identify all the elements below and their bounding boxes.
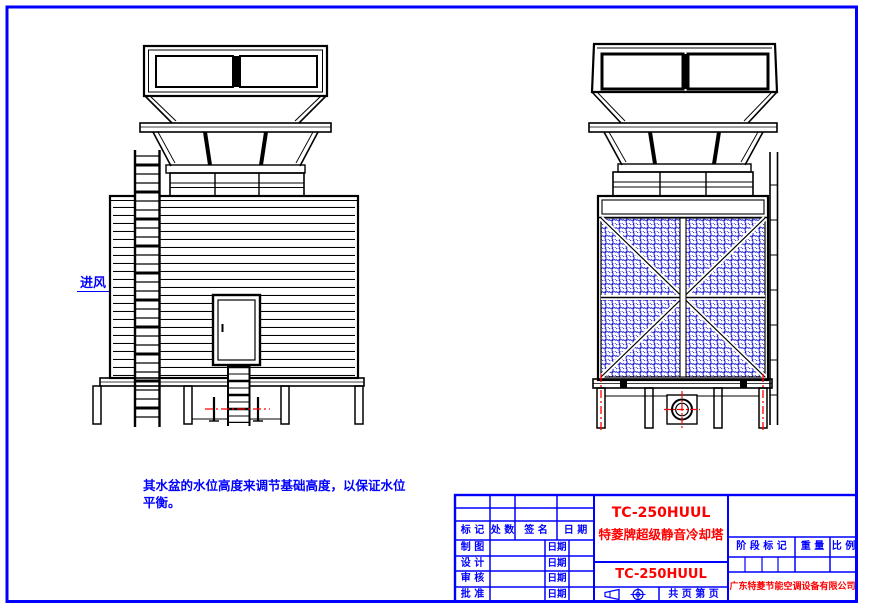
row-checked-date: 日期 bbox=[545, 571, 569, 587]
scale-label: 比 例 bbox=[830, 537, 857, 557]
inlet-mesh-panel bbox=[598, 196, 768, 380]
note-line-2: 平衡。 bbox=[143, 496, 181, 511]
rev-col-count: 处 数 bbox=[490, 521, 515, 540]
rev-col-signature: 签 名 bbox=[515, 521, 557, 540]
rev-col-date: 日 期 bbox=[557, 521, 594, 540]
company-name: 广东特菱节能空调设备有限公司 bbox=[728, 572, 857, 602]
model-number-small: TC-250HUUL bbox=[594, 562, 728, 587]
left-view-side-elevation bbox=[93, 46, 364, 427]
drain-pipe bbox=[664, 391, 700, 428]
air-inlet-label: 进风 bbox=[77, 276, 109, 292]
drawing-svg bbox=[0, 0, 871, 611]
note-line-1: 其水盆的水位高度来调节基础高度，以保证水位 bbox=[143, 479, 406, 494]
ladder-edge-on bbox=[770, 152, 778, 425]
row-approved-label: 批 准 bbox=[455, 587, 490, 602]
fan-venturi-left bbox=[153, 132, 318, 173]
fan-support-stand-left bbox=[170, 173, 304, 196]
right-view-front-elevation bbox=[589, 44, 778, 433]
drawing-sheet: 进风 其水盆的水位高度来调节基础高度，以保证水位 平衡。 标 记 处 数 签 名… bbox=[0, 0, 871, 611]
first-angle-projection-icon bbox=[598, 588, 656, 601]
rev-col-mark: 标 记 bbox=[455, 521, 490, 540]
row-approved-date: 日期 bbox=[545, 587, 569, 602]
access-door bbox=[213, 295, 260, 365]
row-designed-label: 设 计 bbox=[455, 556, 490, 571]
stage-mark-label: 阶 段 标 记 bbox=[728, 537, 795, 557]
fan-support-stand-right bbox=[613, 172, 753, 196]
model-number: TC-250HUUL bbox=[594, 503, 728, 523]
fan-venturi-right bbox=[604, 132, 763, 172]
fan-cowl-right bbox=[589, 44, 777, 132]
row-drafted-label: 制 图 bbox=[455, 540, 490, 556]
row-designed-date: 日期 bbox=[545, 556, 569, 571]
row-drafted-date: 日期 bbox=[545, 540, 569, 556]
pages-label: 共 页 第 页 bbox=[659, 587, 728, 602]
fan-cowl-left bbox=[140, 46, 331, 132]
weight-label: 重 量 bbox=[795, 537, 830, 557]
row-checked-label: 审 核 bbox=[455, 571, 490, 587]
product-name: 特菱牌超级静音冷却塔 bbox=[594, 525, 728, 545]
